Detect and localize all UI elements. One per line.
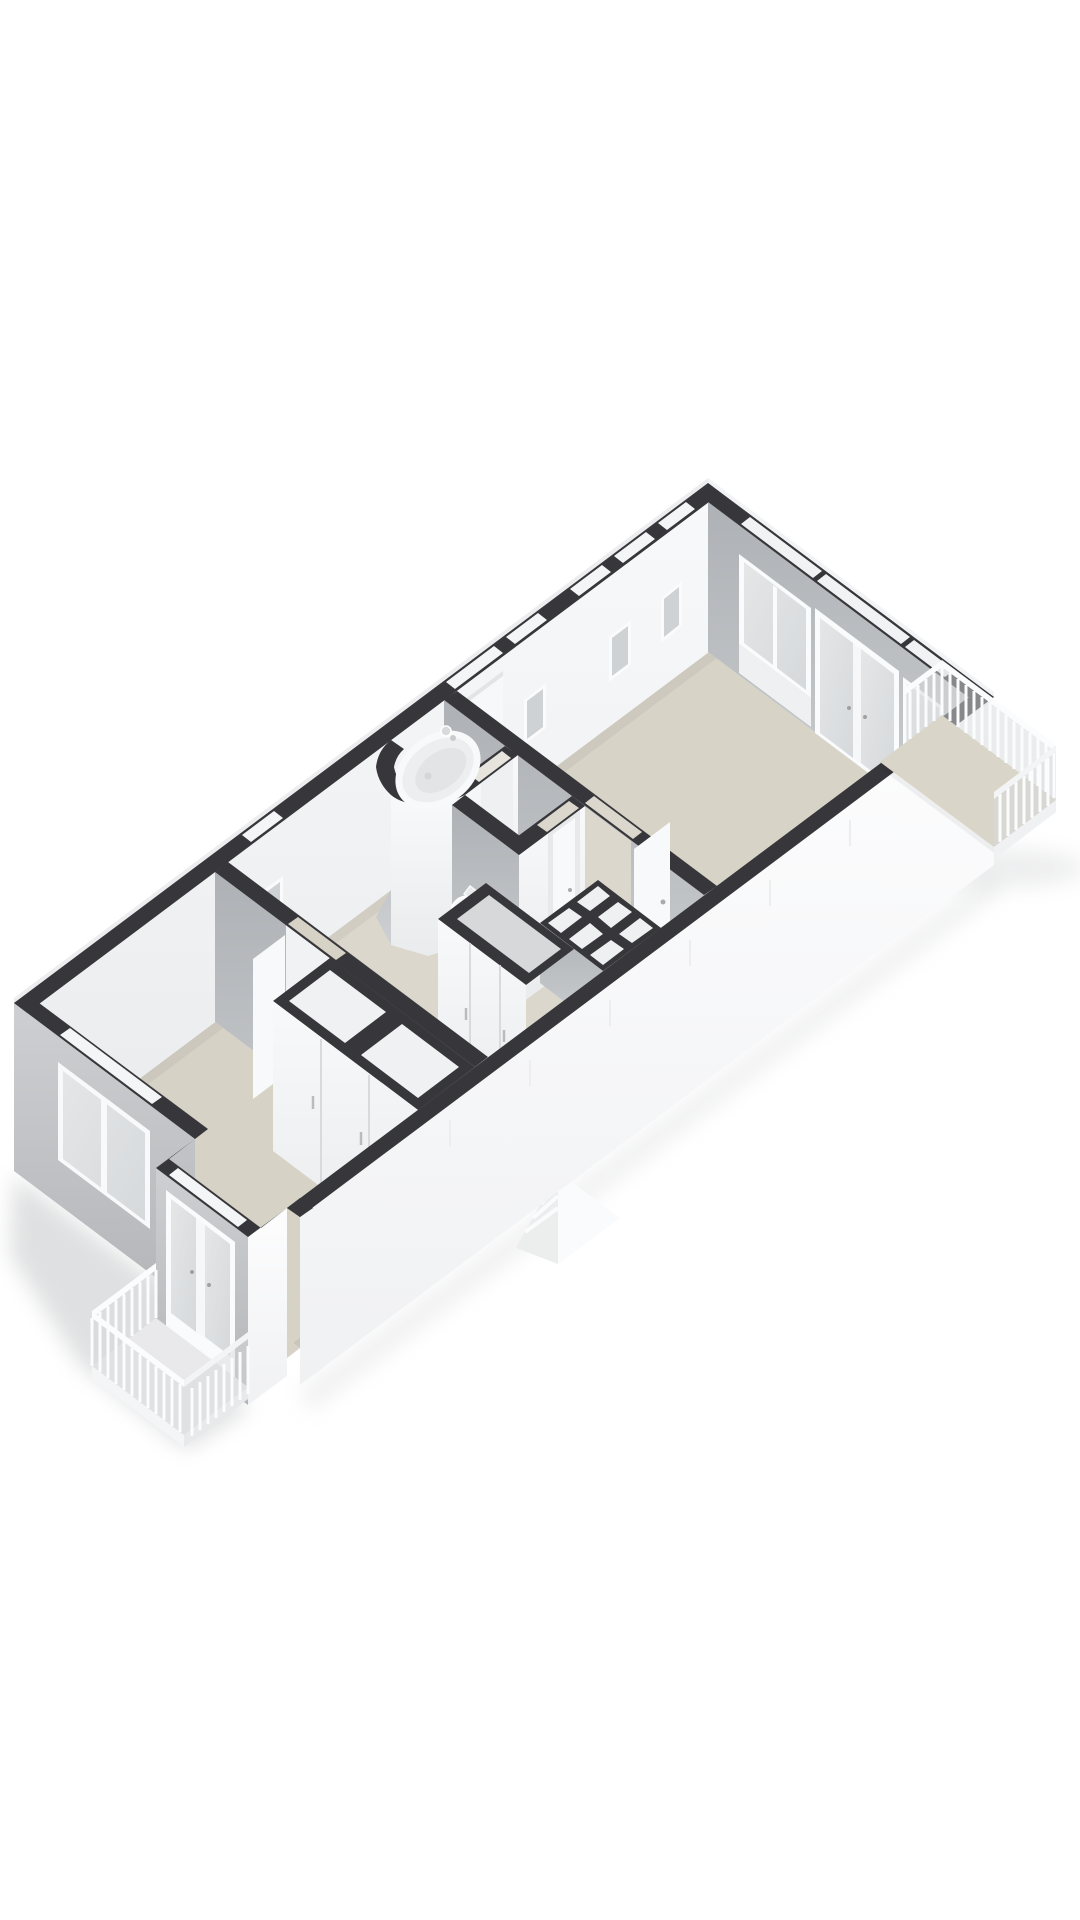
door-handle: [661, 900, 666, 905]
floorplan-stage: [0, 0, 1080, 1920]
floorplan-svg: [0, 0, 1080, 1920]
door-stile: [196, 1218, 205, 1337]
door-glass-right: [205, 1225, 230, 1356]
bath-faucet: [441, 726, 451, 736]
bay-se-face: [248, 1208, 287, 1405]
window-mullion: [773, 585, 777, 671]
door-handle: [207, 1283, 211, 1287]
bath-faucet-handle: [450, 735, 456, 741]
door-handle: [190, 1270, 194, 1274]
door-stile: [853, 643, 861, 763]
bath-drain: [425, 773, 432, 780]
door-handle: [863, 715, 867, 719]
door-handle: [847, 706, 851, 710]
window-mullion: [101, 1097, 107, 1196]
door-glass-left: [171, 1199, 196, 1332]
door-handle: [568, 888, 572, 892]
